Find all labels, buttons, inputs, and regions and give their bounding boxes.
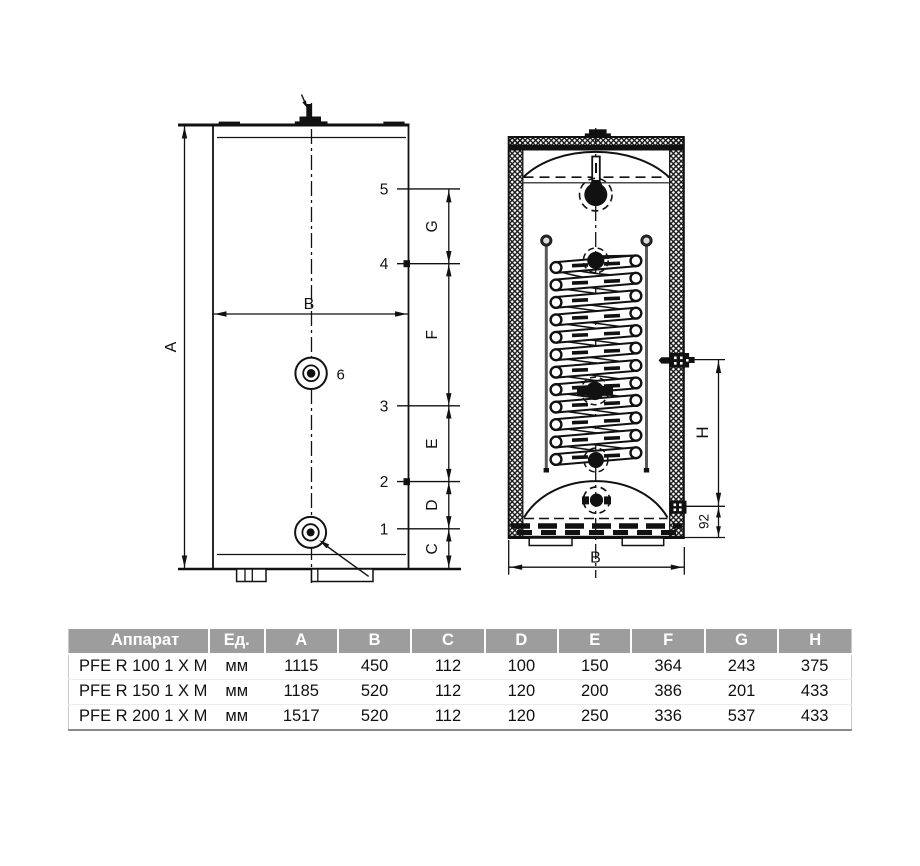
svg-text:B: B <box>304 296 315 313</box>
svg-text:2: 2 <box>380 474 389 491</box>
svg-text:3: 3 <box>380 398 389 415</box>
svg-text:1: 1 <box>380 521 389 538</box>
svg-text:4: 4 <box>380 256 389 273</box>
svg-text:A: A <box>163 341 180 352</box>
svg-text:C: C <box>424 543 441 554</box>
svg-text:6: 6 <box>337 367 345 384</box>
svg-text:H: H <box>693 426 712 438</box>
svg-text:F: F <box>424 330 441 339</box>
svg-text:D: D <box>424 500 441 511</box>
svg-text:E: E <box>424 439 441 449</box>
svg-text:5: 5 <box>380 181 389 198</box>
svg-text:92: 92 <box>697 514 712 529</box>
svg-text:G: G <box>424 220 441 232</box>
svg-text:B: B <box>590 550 601 567</box>
